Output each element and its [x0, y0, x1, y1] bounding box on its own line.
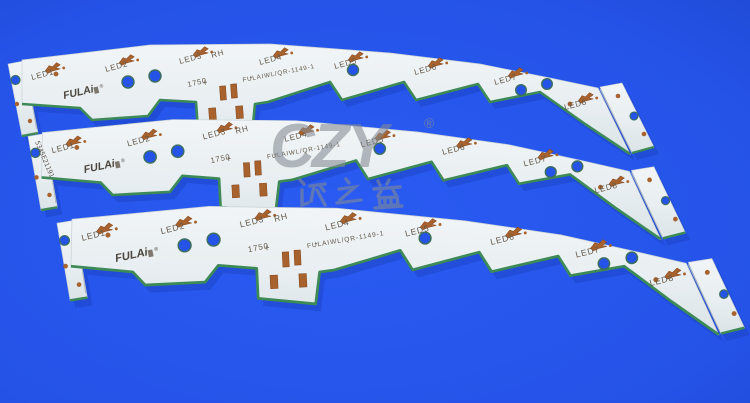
- pcb-product-photo: LED1 LED2 LED3 LED4 LED5 LED6 LED7 LED8 …: [0, 0, 750, 403]
- watermark-registered: ®: [424, 115, 435, 131]
- photo-canvas: LED1 LED2 LED3 LED4 LED5 LED6 LED7 LED8 …: [0, 0, 750, 403]
- watermark-logo: CZY: [270, 112, 394, 181]
